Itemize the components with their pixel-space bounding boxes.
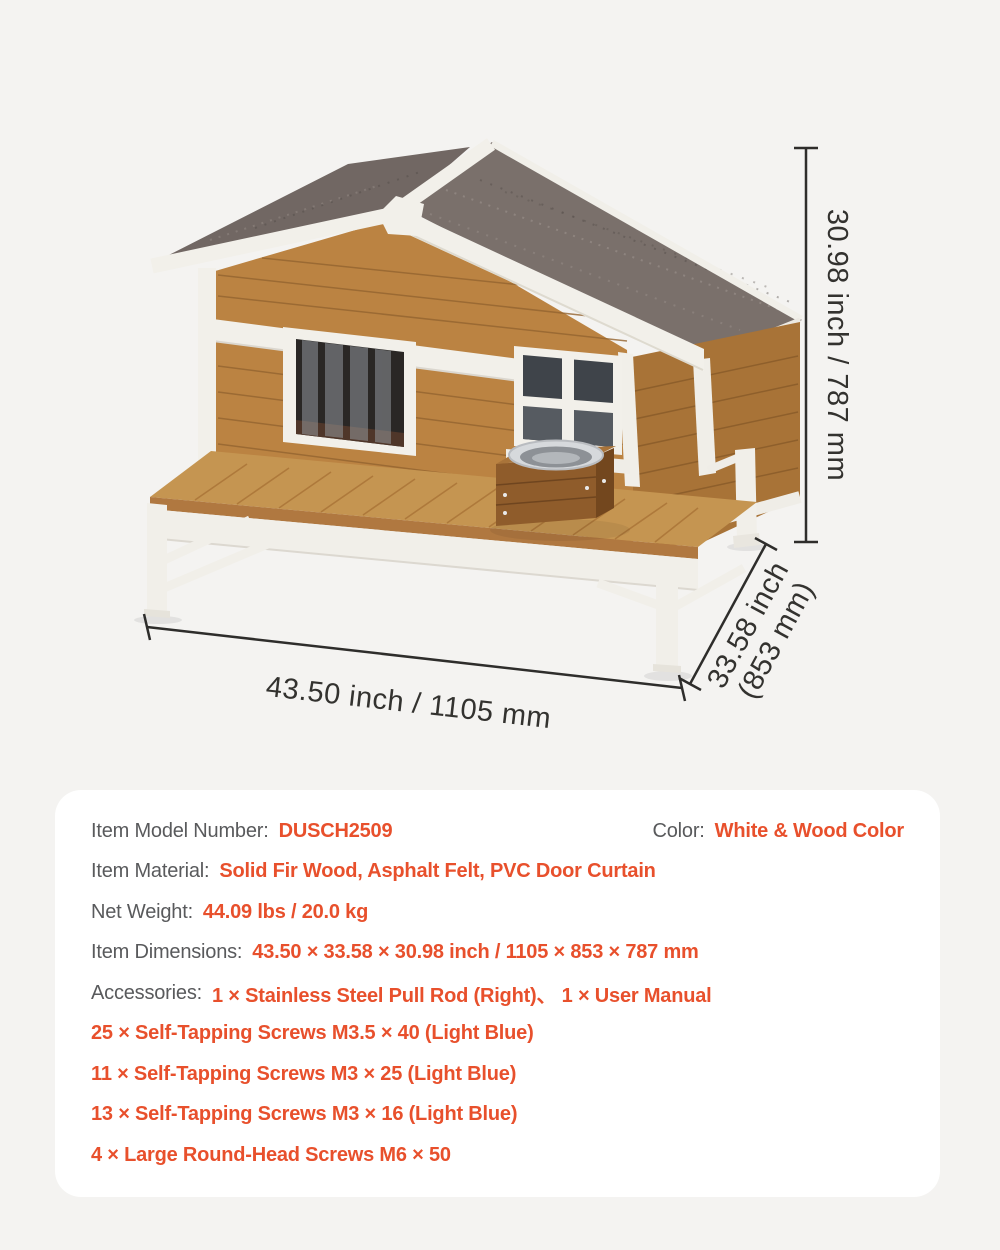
spec-row-model-color: Item Model Number: DUSCH2509 Color: Whit… bbox=[91, 811, 904, 852]
dim-height-label: 30.98 inch / 787 mm bbox=[821, 209, 853, 481]
spec-value: 13 × Self-Tapping Screws M3 × 16 (Light … bbox=[91, 1103, 517, 1126]
spec-row-screws-2: 11 × Self-Tapping Screws M3 × 25 (Light … bbox=[91, 1054, 904, 1095]
spec-value: 44.09 lbs / 20.0 kg bbox=[203, 901, 368, 924]
spec-row-screws-1: 25 × Self-Tapping Screws M3.5 × 40 (Ligh… bbox=[91, 1014, 904, 1055]
spec-value: 25 × Self-Tapping Screws M3.5 × 40 (Ligh… bbox=[91, 1022, 534, 1045]
spec-label: Color: bbox=[653, 820, 705, 843]
spec-label: Item Material: bbox=[91, 860, 209, 883]
page: 30.98 inch / 787 mm 43.50 inch / 1105 mm… bbox=[0, 0, 1000, 1250]
spec-pair-color: Color: White & Wood Color bbox=[653, 820, 905, 843]
spec-label: Net Weight: bbox=[91, 901, 193, 924]
feeding-bowl-stand bbox=[490, 441, 630, 542]
product-photo: 30.98 inch / 787 mm 43.50 inch / 1105 mm… bbox=[0, 0, 1000, 790]
door bbox=[283, 327, 416, 456]
stainless-bowl bbox=[509, 441, 603, 470]
spec-pair-model: Item Model Number: DUSCH2509 bbox=[91, 820, 392, 843]
spec-value: Solid Fir Wood, Asphalt Felt, PVC Door C… bbox=[219, 860, 655, 883]
spec-row-weight: Net Weight: 44.09 lbs / 20.0 kg bbox=[91, 892, 904, 933]
spec-label: Item Dimensions: bbox=[91, 941, 242, 964]
spec-value: 11 × Self-Tapping Screws M3 × 25 (Light … bbox=[91, 1063, 516, 1086]
spec-row-dimensions: Item Dimensions: 43.50 × 33.58 × 30.98 i… bbox=[91, 933, 904, 974]
dim-width-label: 43.50 inch / 1105 mm bbox=[264, 671, 553, 735]
spec-card: Item Model Number: DUSCH2509 Color: Whit… bbox=[55, 790, 940, 1197]
spec-value: 1 × Stainless Steel Pull Rod (Right)、 1 … bbox=[212, 979, 712, 1008]
spec-row-accessories: Accessories: 1 × Stainless Steel Pull Ro… bbox=[91, 973, 904, 1014]
spec-row-material: Item Material: Solid Fir Wood, Asphalt F… bbox=[91, 852, 904, 893]
spec-row-screws-3: 13 × Self-Tapping Screws M3 × 16 (Light … bbox=[91, 1095, 904, 1136]
spec-value: DUSCH2509 bbox=[279, 820, 393, 843]
spec-value: 43.50 × 33.58 × 30.98 inch / 1105 × 853 … bbox=[252, 941, 698, 964]
spec-label: Accessories: bbox=[91, 982, 202, 1005]
spec-row-screws-4: 4 × Large Round-Head Screws M6 × 50 bbox=[91, 1135, 904, 1176]
spec-value: 4 × Large Round-Head Screws M6 × 50 bbox=[91, 1144, 451, 1167]
spec-value: White & Wood Color bbox=[715, 820, 904, 843]
spec-label: Item Model Number: bbox=[91, 820, 269, 843]
left-corner-post bbox=[198, 268, 216, 472]
